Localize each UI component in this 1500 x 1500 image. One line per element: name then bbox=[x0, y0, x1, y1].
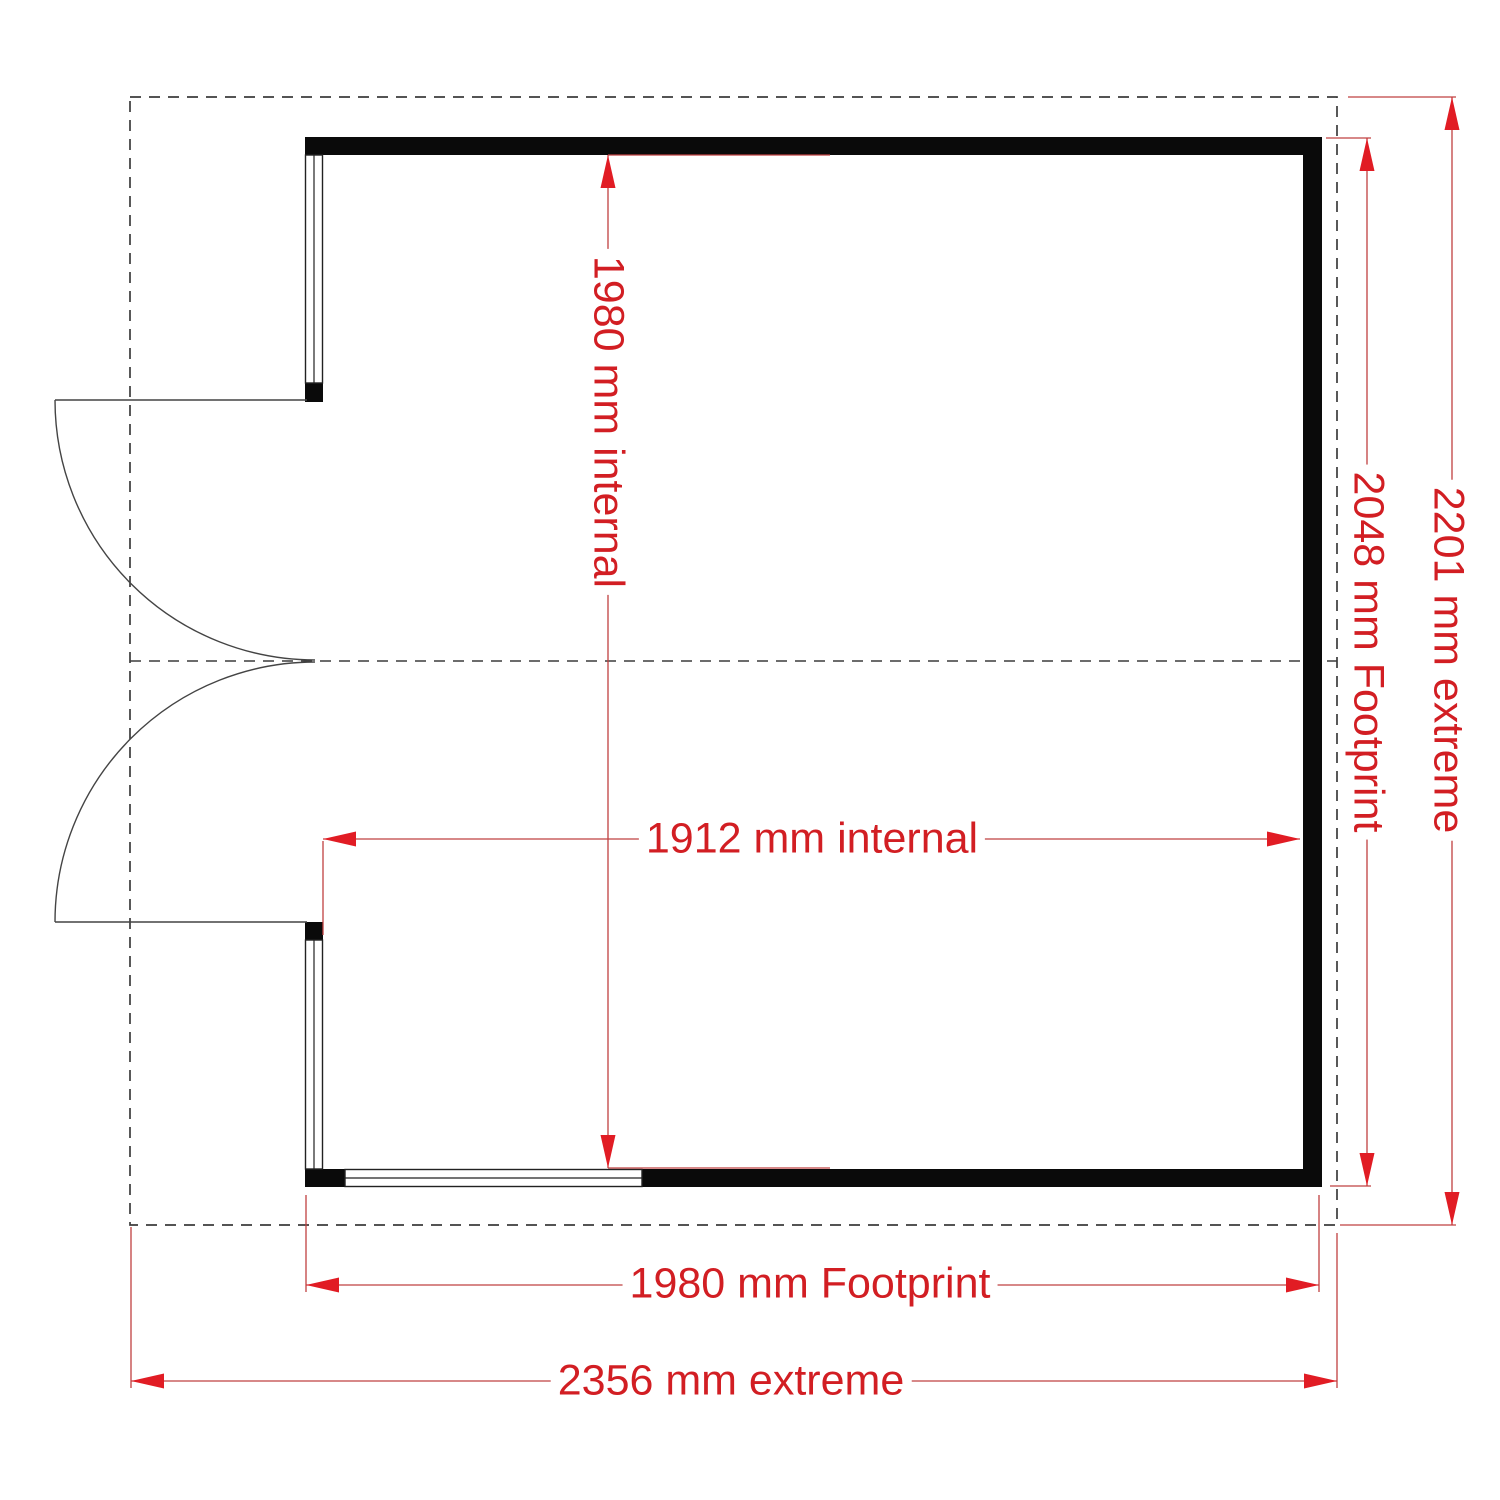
dimension-label-footprint-width: 1980 mm Footprint bbox=[623, 1261, 998, 1306]
wall-bottom-left-corner bbox=[305, 1169, 345, 1187]
window-left-top bbox=[306, 155, 323, 383]
wall-right bbox=[1303, 137, 1322, 1187]
floor-plan-canvas: 1980 mm internal 1912 mm internal 2048 m… bbox=[0, 0, 1500, 1500]
window-left-bottom bbox=[306, 940, 323, 1169]
wall-top bbox=[305, 137, 1322, 155]
arrow-left-extreme-width bbox=[131, 1374, 164, 1389]
arrow-down-footprint-height bbox=[1360, 1153, 1375, 1186]
dimension-label-extreme-width: 2356 mm extreme bbox=[551, 1358, 912, 1403]
wall-bottom bbox=[642, 1169, 1322, 1187]
window-bottom bbox=[345, 1170, 642, 1187]
dimension-lines bbox=[131, 97, 1456, 1388]
arrow-right-internal-width bbox=[1267, 832, 1300, 847]
dimension-arrowheads bbox=[131, 97, 1460, 1389]
dimension-label-extreme-height: 2201 mm extreme bbox=[1425, 480, 1470, 841]
arrow-left-internal-width bbox=[323, 832, 356, 847]
arrow-right-extreme-width bbox=[1304, 1374, 1337, 1389]
arrow-right-footprint-width bbox=[1286, 1278, 1319, 1293]
door-post-bottom bbox=[305, 922, 323, 940]
dimension-label-internal-width: 1912 mm internal bbox=[639, 816, 985, 861]
door-post-top bbox=[305, 383, 323, 402]
arrow-down-extreme-height bbox=[1445, 1192, 1460, 1225]
door-swing-arc-top bbox=[55, 400, 315, 660]
dimension-label-internal-height: 1980 mm internal bbox=[585, 249, 630, 595]
arrow-left-footprint-width bbox=[306, 1278, 339, 1293]
arrow-up-footprint-height bbox=[1360, 138, 1375, 171]
arrow-down-internal-height bbox=[601, 1135, 616, 1168]
arrow-up-internal-height bbox=[601, 155, 616, 188]
dimension-label-footprint-height: 2048 mm Footprint bbox=[1345, 465, 1390, 840]
arrow-up-extreme-height bbox=[1445, 97, 1460, 130]
door-swing-arc-bottom bbox=[55, 662, 315, 922]
